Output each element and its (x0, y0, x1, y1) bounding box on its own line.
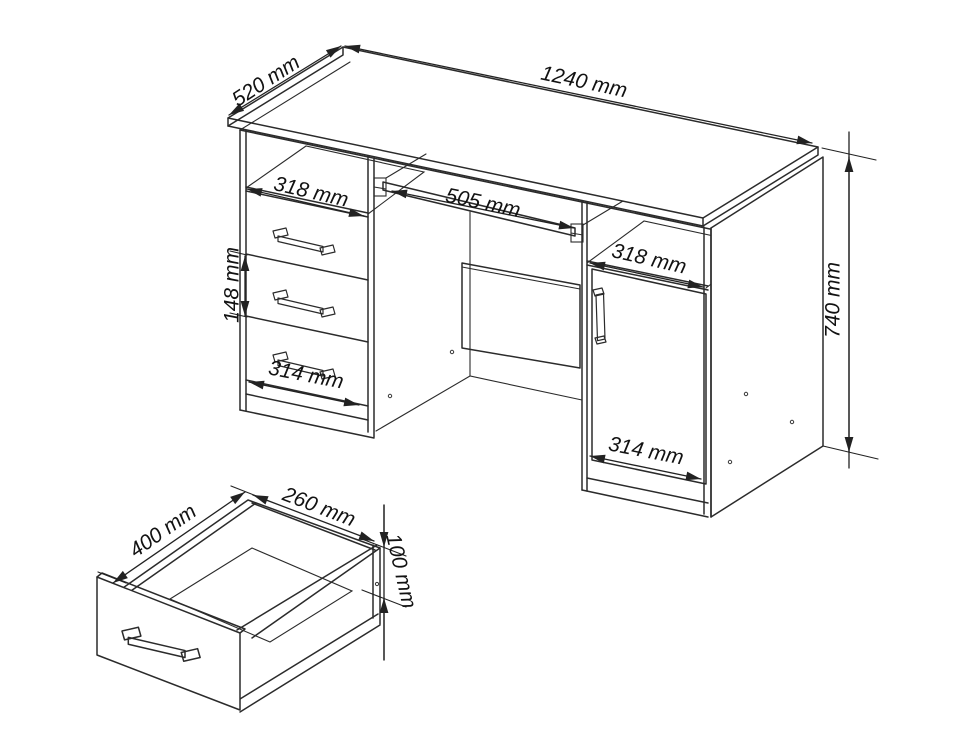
pedestal-base-line (246, 394, 368, 420)
desk-technical-drawing-page: 520 mm 1240 mm 318 mm 505 mm 148 mm 314 … (0, 0, 960, 752)
dim-label-318-left: 318 mm (271, 172, 350, 211)
back-modesty-panel (462, 263, 580, 368)
desk-technical-drawing: 520 mm 1240 mm 318 mm 505 mm 148 mm 314 … (0, 0, 960, 752)
screw-hole-dot (375, 582, 378, 585)
drawer-detail (97, 486, 406, 712)
drawer-divider-2 (246, 316, 368, 342)
drawer-1-handle-icon (273, 228, 335, 255)
left-pedestal (240, 130, 424, 438)
cabinet-base-line (587, 478, 708, 503)
drawer-divider-1 (246, 254, 368, 280)
screw-hole-dot (450, 350, 453, 353)
dim-label-148: 148 mm (221, 247, 244, 323)
cabinet-bottom-edge (582, 490, 708, 517)
dim-label-505: 505 mm (444, 184, 523, 222)
right-side-panel (704, 157, 823, 517)
drawer-front-panel (97, 573, 245, 710)
pedestal-bottom-edge (240, 410, 374, 438)
dim-label-100: 100 mm (381, 531, 420, 610)
dim-label-260: 260 mm (279, 482, 359, 531)
dim-label-740: 740 mm (822, 262, 845, 338)
screw-hole-dot (388, 394, 391, 397)
drawer-2-handle-icon (273, 290, 335, 317)
